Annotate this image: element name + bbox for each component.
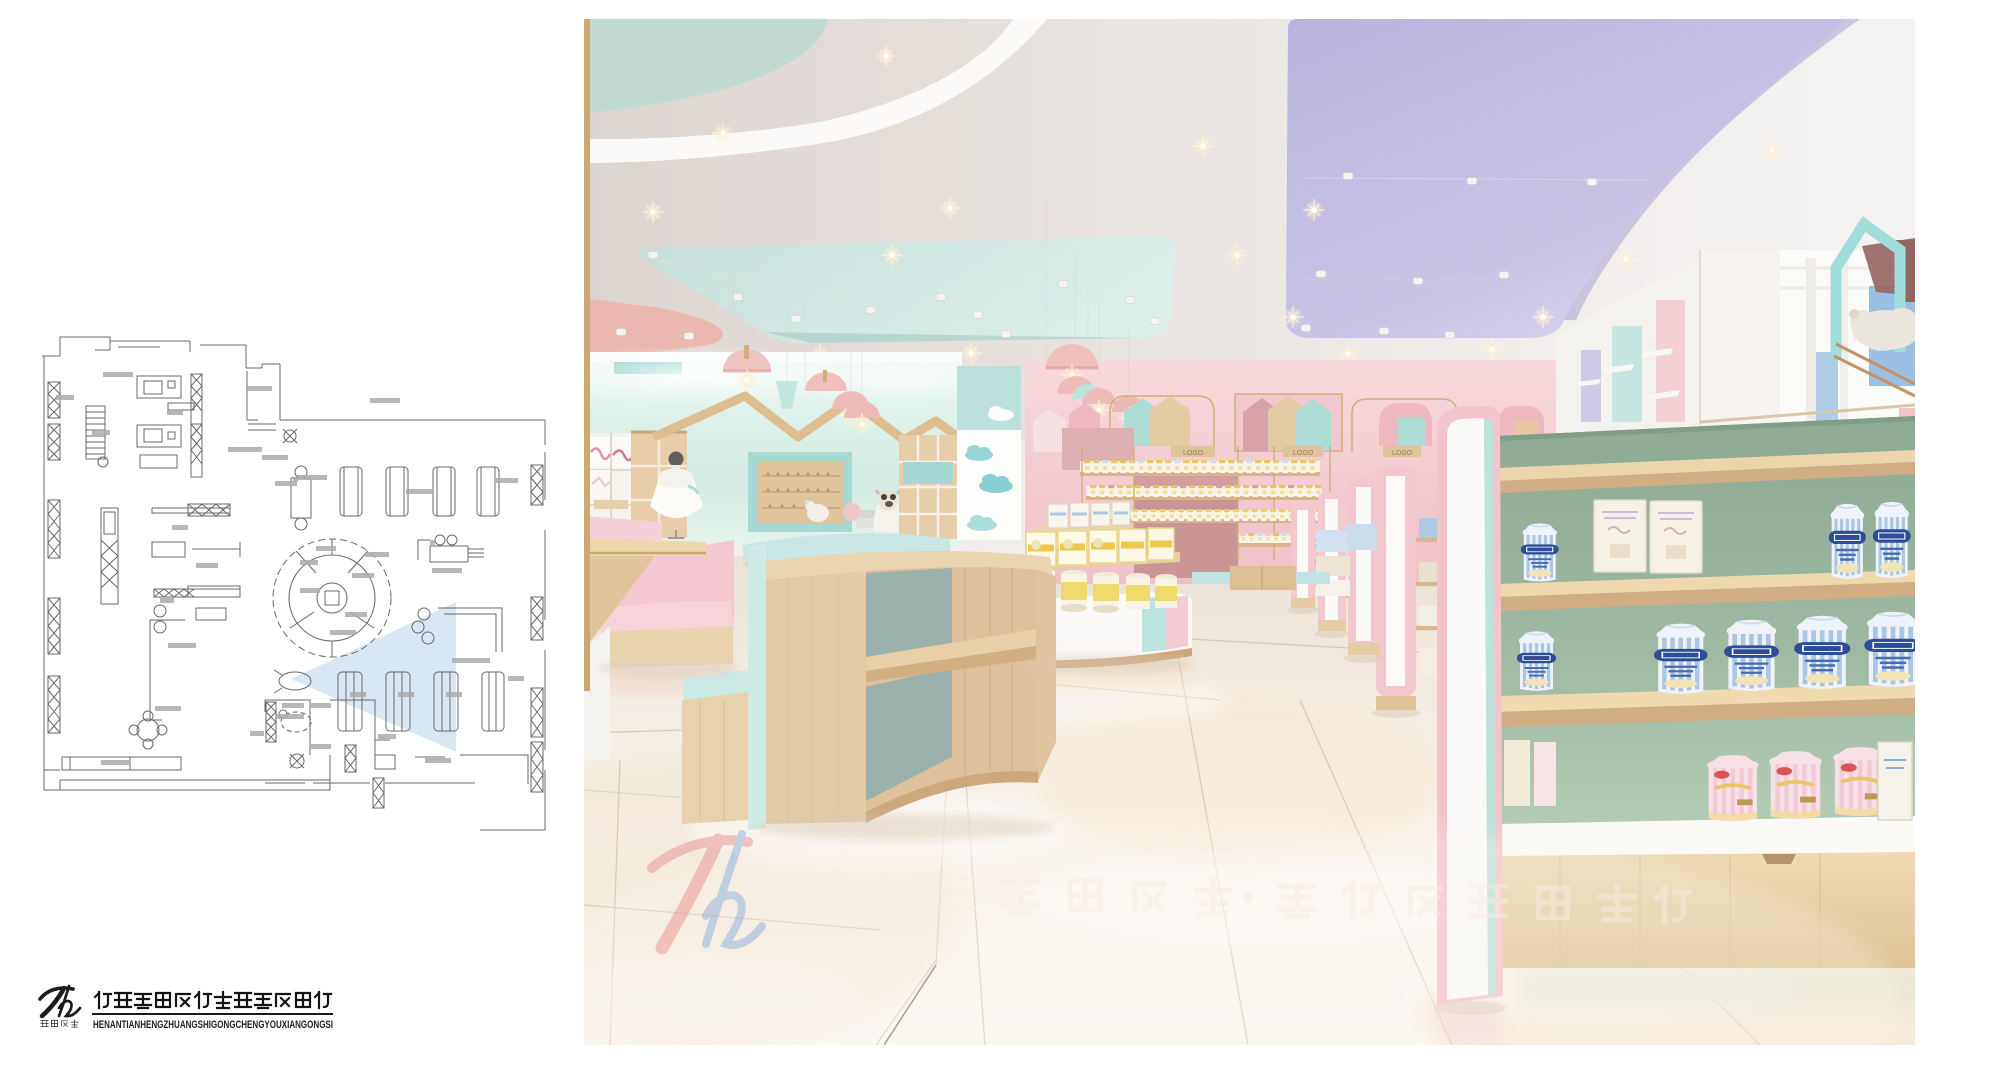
svg-text:HENANTIANHENGZHUANGSHIGONGCHEN: HENANTIANHENGZHUANGSHIGONGCHENGYOUXIANGO… bbox=[93, 1019, 333, 1031]
